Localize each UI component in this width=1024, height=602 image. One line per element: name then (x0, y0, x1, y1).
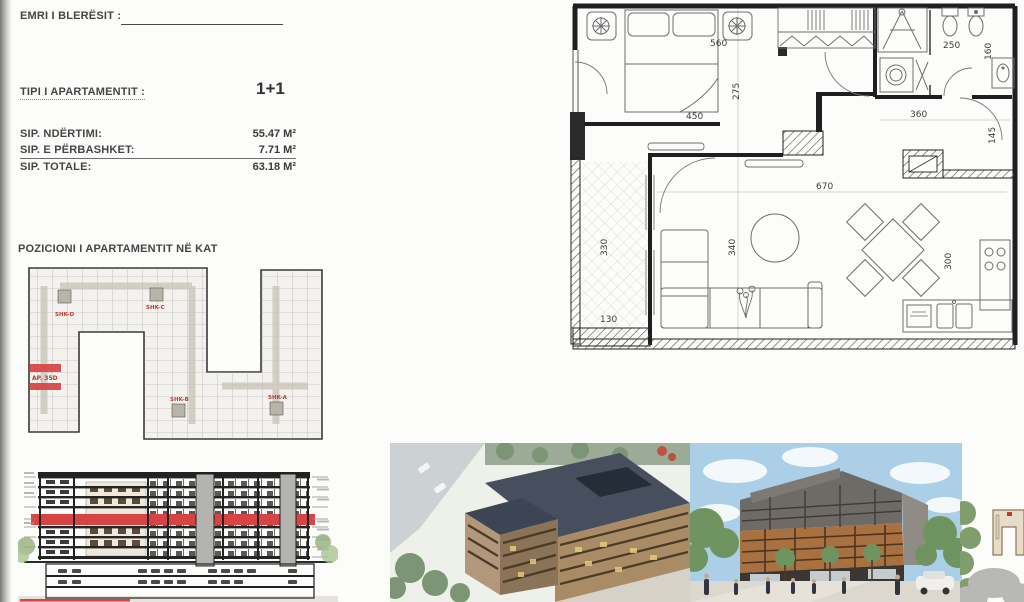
sink-icon (992, 58, 1014, 88)
balcony-wall (571, 158, 580, 344)
dim-label: 340 (728, 239, 738, 256)
console-table-icon (648, 143, 704, 150)
wall-pier (570, 112, 585, 160)
dim-label: 360 (910, 110, 927, 120)
area-table: SIP. NDËRTIMI: 55.47 M² SIP. E PËRBASHKE… (20, 126, 296, 175)
autumn-tree-icon (668, 453, 676, 461)
dim-label: 300 (944, 253, 954, 270)
area-value: 7.71 M² (259, 144, 296, 156)
autumn-tree-icon (657, 446, 667, 456)
buyer-name-label: EMRI I BLERËSIT : (20, 10, 121, 22)
apartment-floor-plan: 560 275 450 250 160 360 145 670 330 130 … (560, 0, 1024, 358)
stair-core-d (58, 290, 71, 303)
stair-core-c (150, 288, 163, 301)
dim-label: 330 (600, 239, 610, 256)
street-render-photo (690, 443, 962, 602)
cutoff-red-band (20, 599, 130, 602)
dim-label: 130 (600, 315, 617, 325)
kitchen-sink-icon (903, 300, 1012, 332)
floor-position-plan: AP. 35D SHK-D SHK-C SHK-B SHK-A (22, 264, 328, 446)
stair-core-b (172, 404, 185, 417)
area-label: SIP. NDËRTIMI: (20, 128, 102, 140)
balcony-floor (582, 162, 648, 338)
dim-label: 560 (710, 39, 727, 49)
stairwell-label-a: SHK-A (268, 395, 288, 401)
site-plan-thumbnail-cutoff (960, 443, 1024, 602)
position-section-title: POZICIONI I APARTAMENTIT NË KAT (18, 243, 218, 255)
shower-icon (878, 8, 927, 52)
dim-label: 160 (984, 43, 994, 60)
building-section-drawing (18, 468, 338, 602)
scanned-document-page: EMRI I BLERËSIT : TIPI I APARTAMENTIT : … (0, 0, 1024, 602)
dim-label: 450 (686, 112, 703, 122)
plant-icon (737, 286, 755, 318)
balcony-bottom-wall (573, 328, 650, 346)
apartment-type-value: 1+1 (256, 79, 285, 99)
dim-label: 670 (816, 182, 833, 192)
dim-label: 250 (943, 41, 960, 51)
apartment-number-label: AP. 35D (32, 375, 58, 382)
wall-hatched-block (783, 131, 823, 155)
washing-machine-icon (880, 58, 928, 92)
footprint-highlight (1007, 512, 1012, 516)
stair-core-a (270, 402, 283, 415)
table-row: SIP. NDËRTIMI: 55.47 M² (20, 126, 296, 142)
area-value: 63.18 M² (253, 161, 296, 173)
dim-label: 275 (732, 83, 742, 100)
console-table-icon (745, 160, 803, 167)
area-value: 55.47 M² (253, 128, 296, 140)
toilet-icon (942, 8, 958, 36)
dining-set-icon (847, 204, 940, 297)
window-left (573, 50, 578, 112)
apartment-type-label: TIPI I APARTAMENTIT : (20, 86, 145, 100)
aerial-render-photo (390, 443, 690, 602)
wall-hall-living (943, 170, 1015, 178)
bed-icon (625, 10, 718, 112)
stairwell-label-c: SHK-C (146, 305, 165, 311)
highlight-apartment-band (30, 364, 61, 372)
roof-parapet (38, 472, 310, 476)
bidet-icon (968, 8, 984, 36)
buyer-name-blank-line (121, 24, 283, 25)
page-edge-shadow (0, 0, 12, 602)
stair-core (280, 474, 296, 566)
dim-label: 145 (988, 127, 998, 144)
gray-blobs (960, 568, 1024, 602)
stairwell-label-b: SHK-B (170, 397, 189, 403)
wardrobe-icon (778, 8, 875, 48)
underground-parking (46, 564, 314, 598)
area-label: SIP. E PËRBASHKET: (20, 144, 135, 156)
table-row: SIP. TOTALE: 63.18 M² (20, 159, 296, 175)
area-label: SIP. TOTALE: (20, 161, 91, 173)
round-rug-icon (751, 214, 799, 262)
stairwell-label-d: SHK-D (55, 312, 75, 318)
table-row: SIP. E PËRBASHKET: 7.71 M² (20, 142, 296, 159)
stair-core (196, 474, 214, 566)
highlight-apartment-band (30, 383, 61, 390)
